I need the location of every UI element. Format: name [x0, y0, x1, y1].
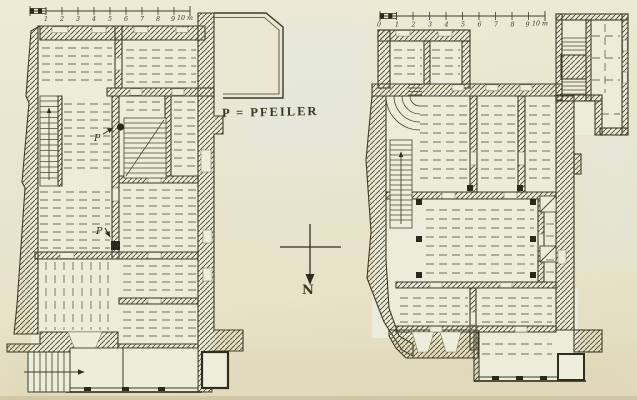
pillar-marker-label: P — [95, 226, 103, 237]
left-plan-terrace — [214, 13, 283, 98]
scale-label: 7 — [494, 22, 498, 29]
scale-label: 1 — [44, 16, 48, 23]
scale-label: 1 — [395, 22, 399, 29]
left-plan-stair-centre — [124, 118, 166, 178]
scale-label: 10 m — [177, 15, 193, 22]
scale-label: 10 m — [532, 21, 548, 28]
scale-label: 2 — [411, 22, 416, 29]
scale-label: 3 — [76, 16, 80, 23]
scale-label: 9 — [171, 16, 175, 23]
scale-label: 3 — [428, 22, 432, 29]
scale-label: 6 — [124, 16, 128, 23]
scale-label: 8 — [511, 22, 515, 29]
right-scale-labels: 0 1 2 3 4 5 6 7 8 9 10 m — [377, 21, 548, 29]
scale-label: 5 — [461, 22, 465, 29]
scale-label: 8 — [156, 16, 160, 23]
scale-label: 5 — [108, 16, 112, 23]
scale-label: 0 — [377, 22, 381, 29]
scale-label: 7 — [140, 16, 144, 23]
scanned-floor-plan-page: 1 2 3 4 5 6 7 8 9 10 m — [0, 0, 637, 400]
left-plan-annex-room — [202, 352, 228, 388]
north-arrow — [280, 224, 341, 285]
right-scale-bar — [380, 11, 545, 21]
pfeiler-legend: P = PFEILER — [222, 104, 319, 121]
scale-label: 4 — [91, 16, 96, 23]
scale-label: 9 — [526, 22, 530, 29]
north-label: N — [302, 283, 314, 298]
right-plan — [366, 14, 628, 381]
floor-plan-drawing: 1 2 3 4 5 6 7 8 9 10 m — [0, 0, 637, 400]
pillar-marker-label: P — [93, 133, 101, 144]
left-plan-entry — [24, 348, 202, 392]
scale-label: 4 — [444, 22, 449, 29]
scale-label: 2 — [59, 16, 64, 23]
right-plan-straight-stair — [390, 140, 412, 228]
left-plan: P P — [7, 13, 283, 392]
scale-label: 6 — [478, 22, 482, 29]
left-scale-labels: 1 2 3 4 5 6 7 8 9 10 m — [44, 15, 193, 23]
left-scale-bar — [30, 6, 190, 16]
